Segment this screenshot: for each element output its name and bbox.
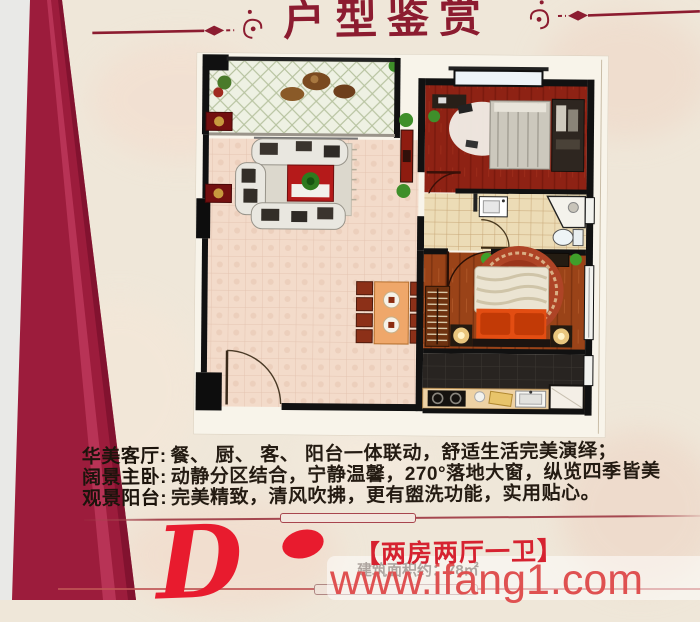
living-dining-room xyxy=(195,111,429,412)
master-bedroom xyxy=(423,245,586,351)
flourish-ornament-left xyxy=(92,6,273,49)
bathroom xyxy=(424,193,586,251)
page-title: 户型鉴赏 xyxy=(282,0,491,48)
feature-description: 华美客厅:餐、 厨、 客、 阳台一体联动，舒适生活完美演绎； 阔景主卧:动静分区… xyxy=(82,439,700,510)
kitchen xyxy=(423,348,586,414)
unit-type-label: 【两房两厅一卫】 xyxy=(355,531,564,571)
divider-capsule-top xyxy=(280,513,416,523)
floor-plan-image xyxy=(193,52,608,438)
second-bedroom xyxy=(424,66,587,207)
feature-label-living: 华美客厅: xyxy=(82,446,167,468)
unit-letter: D xyxy=(154,511,244,614)
flourish-ornament-right xyxy=(520,0,700,37)
feature-label-bedroom: 阔景主卧: xyxy=(82,467,167,489)
